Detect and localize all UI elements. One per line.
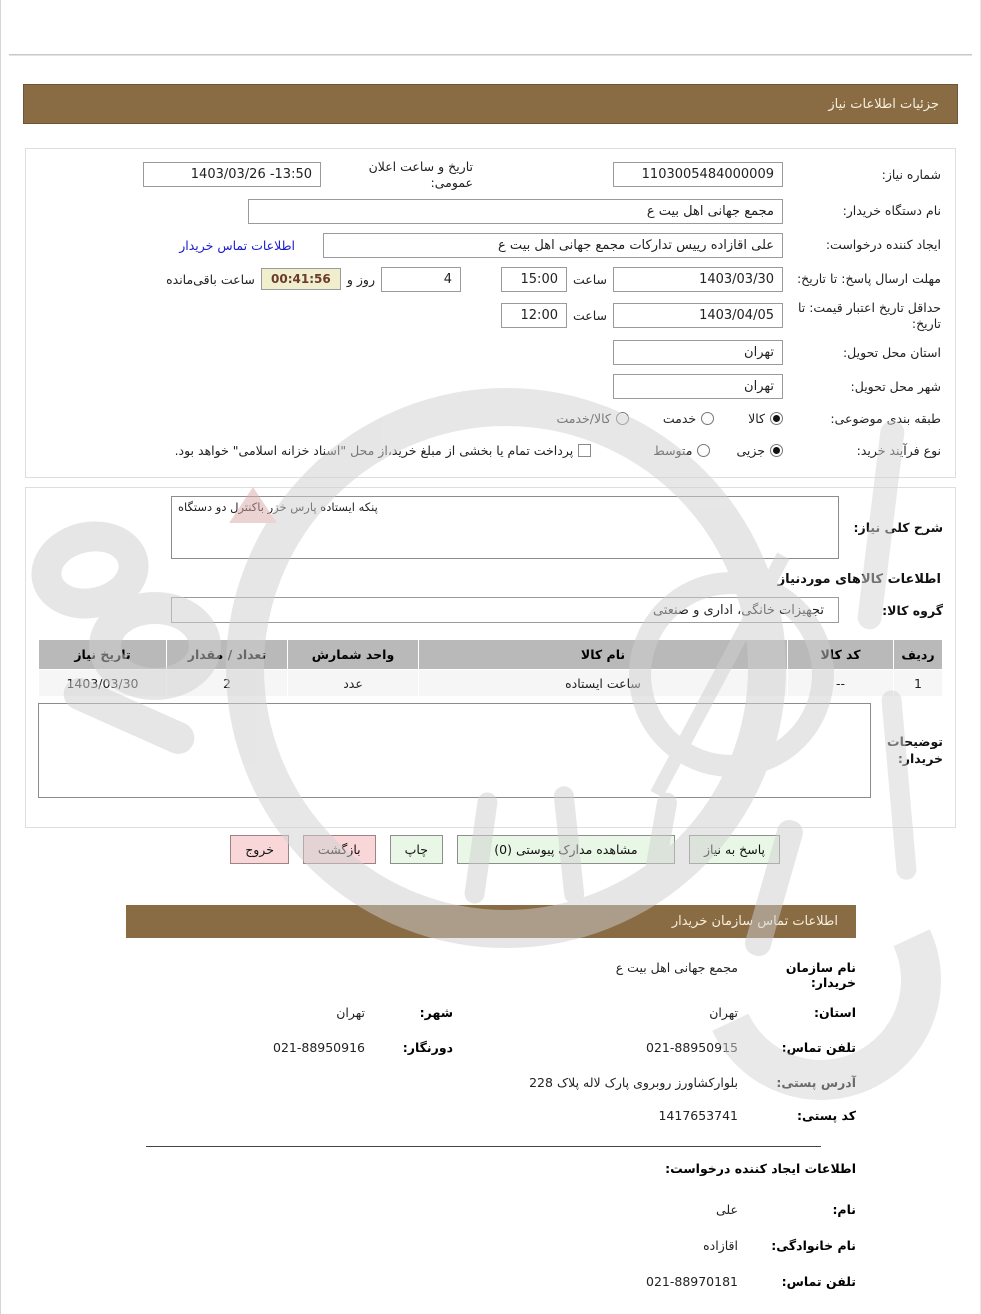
reply-deadline-time-field[interactable]: 15:00 xyxy=(501,267,567,292)
cell-code: -- xyxy=(788,670,893,696)
announce-datetime-label: تاریخ و ساعت اعلان عمومی: xyxy=(321,159,473,190)
row-need-number: شماره نیاز: 1103005484000009 تاریخ و ساع… xyxy=(40,159,941,190)
section-header-details-title: جزئیات اطلاعات نیاز xyxy=(828,97,939,112)
contact-province-label: استان: xyxy=(738,1005,856,1020)
option-service: خدمت xyxy=(663,411,714,426)
row-goods-group: گروه کالا: تجهیزات خانگی، اداری و صنعتی xyxy=(38,597,943,623)
option-minor: جزیی xyxy=(736,443,783,458)
radio-minor[interactable] xyxy=(770,444,783,457)
hours-remaining-label: ساعت باقی‌مانده xyxy=(166,272,255,287)
reply-deadline-hour-label: ساعت xyxy=(573,272,607,287)
org-name-value: مجمع جهانی اهل بیت ع xyxy=(606,960,738,975)
buyer-comments-label: توضیحات خریدار: xyxy=(871,734,943,768)
row-postal-code: کد پستی: 1417653741 xyxy=(126,1108,856,1128)
first-name-label: نام: xyxy=(738,1202,856,1217)
buyer-contact-link[interactable]: اطلاعات تماس خریدار xyxy=(179,238,295,253)
first-name-value: علی xyxy=(706,1202,738,1217)
delivery-city-label: شهر محل تحویل: xyxy=(783,379,941,395)
top-divider xyxy=(9,54,972,56)
contact-city-value: تهران xyxy=(135,1005,365,1020)
col-row: ردیف xyxy=(894,640,942,669)
col-name: نام کالا xyxy=(419,640,787,669)
creator-info-heading: اطلاعات ایجاد کننده درخواست: xyxy=(126,1161,856,1176)
row-province-city: استان: تهران شهر: تهران xyxy=(126,1005,856,1025)
delivery-province-label: استان محل تحویل: xyxy=(783,345,941,361)
back-button[interactable]: بازگشت xyxy=(303,835,376,864)
option-medium: متوسط xyxy=(653,443,710,458)
table-row[interactable]: 1 -- ساعت ایستاده عدد 2 1403/03/30 xyxy=(39,670,942,696)
price-validity-date-field[interactable]: 1403/04/05 xyxy=(613,303,783,328)
last-name-value: اقازاده xyxy=(693,1238,738,1253)
reply-deadline-date-field[interactable]: 1403/03/30 xyxy=(613,267,783,292)
cell-unit: عدد xyxy=(288,670,418,696)
price-validity-time-field[interactable]: 12:00 xyxy=(501,303,567,328)
creator-phone-label: تلفن تماس: xyxy=(738,1274,856,1289)
cell-name: ساعت ایستاده xyxy=(419,670,787,696)
treasury-payment-option: پرداخت تمام یا بخشی از مبلغ خرید،از محل … xyxy=(175,443,592,458)
row-delivery-city: شهر محل تحویل: تهران xyxy=(40,374,941,400)
row-delivery-province: استان محل تحویل: تهران xyxy=(40,340,941,366)
radio-goods-service[interactable] xyxy=(616,412,629,425)
col-qty: تعداد / مقدار xyxy=(167,640,287,669)
option-goods-service: کالا/خدمت xyxy=(556,411,628,426)
contact-phone-value: 021-88950915 xyxy=(453,1040,738,1055)
row-postal-address: آدرس پستی: بلوارکشاورز روبروی پارک لاله … xyxy=(126,1075,856,1095)
countdown-timer: 00:41:56 xyxy=(261,268,341,290)
action-buttons-row: پاسخ به نیاز مشاهده مدارک پیوستی (0) چاپ… xyxy=(1,835,980,864)
goods-section-heading: اطلاعات کالاهای موردنیاز xyxy=(38,572,941,587)
postal-address-value: بلوارکشاورز روبروی پارک لاله پلاک 228 xyxy=(519,1075,738,1090)
radio-medium[interactable] xyxy=(697,444,710,457)
announce-datetime-field[interactable]: 1403/03/26 -13:50 xyxy=(143,162,321,187)
print-button[interactable]: چاپ xyxy=(390,835,443,864)
need-description-label: شرح کلی نیاز: xyxy=(839,520,943,535)
row-phone-fax: تلفن تماس: 021-88950915 دورنگار: 021-889… xyxy=(126,1040,856,1060)
row-subject-class: طبقه بندی موضوعی: کالا خدمت کالا/خدمت xyxy=(40,408,941,430)
cell-date: 1403/03/30 xyxy=(39,670,166,696)
buyer-device-label: نام دستگاه خریدار: xyxy=(783,203,941,219)
radio-goods[interactable] xyxy=(770,412,783,425)
creator-phone-value: 021-88970181 xyxy=(636,1274,738,1289)
row-buyer-device: نام دستگاه خریدار: مجمع جهانی اهل بیت ع xyxy=(40,198,941,224)
row-price-validity: حداقل تاریخ اعتبار قیمت: تا تاریخ: 1403/… xyxy=(40,300,941,331)
remaining-days-field[interactable]: 4 xyxy=(381,267,461,292)
goods-group-label: گروه کالا: xyxy=(839,603,943,618)
row-buyer-comments: توضیحات خریدار: xyxy=(38,703,943,798)
goods-info-panel: شرح کلی نیاز: پنکه ایستاده پارس خزر باکن… xyxy=(25,487,956,828)
need-description-textarea[interactable]: پنکه ایستاده پارس خزر باکنترل دو دستگاه xyxy=(171,496,839,559)
subject-class-label: طبقه بندی موضوعی: xyxy=(783,411,941,427)
request-creator-label: ایجاد کننده درخواست: xyxy=(783,237,941,253)
row-creator-phone: تلفن تماس: 021-88970181 xyxy=(126,1274,856,1294)
col-unit: واحد شمارش xyxy=(288,640,418,669)
section-header-contact: اطلاعات تماس سازمان خریدار xyxy=(126,905,856,938)
delivery-province-field[interactable]: تهران xyxy=(613,340,783,365)
row-request-creator: ایجاد کننده درخواست: علی اقازاده رییس تد… xyxy=(40,232,941,258)
row-need-description: شرح کلی نیاز: پنکه ایستاده پارس خزر باکن… xyxy=(38,496,943,559)
request-creator-field[interactable]: علی اقازاده رییس تدارکات مجمع جهانی اهل … xyxy=(323,233,783,258)
buyer-device-field[interactable]: مجمع جهانی اهل بیت ع xyxy=(248,199,783,224)
col-code: کد کالا xyxy=(788,640,893,669)
section-header-details: جزئیات اطلاعات نیاز xyxy=(23,84,958,124)
postal-address-label: آدرس پستی: xyxy=(738,1075,856,1090)
contact-fax-value: 021-88950916 xyxy=(135,1040,365,1055)
goods-table-header-row: ردیف کد کالا نام کالا واحد شمارش تعداد /… xyxy=(39,640,942,669)
delivery-city-field[interactable]: تهران xyxy=(613,374,783,399)
contact-divider xyxy=(146,1146,821,1147)
contact-province-value: تهران xyxy=(453,1005,738,1020)
contact-city-label: شهر: xyxy=(365,1005,453,1020)
row-last-name: نام خانوادگی: اقازاده xyxy=(126,1238,856,1258)
reply-deadline-label: مهلت ارسال پاسخ: تا تاریخ: xyxy=(783,271,941,287)
goods-table: ردیف کد کالا نام کالا واحد شمارش تعداد /… xyxy=(38,639,943,697)
treasury-payment-checkbox[interactable] xyxy=(578,444,591,457)
row-process-type: نوع فرآیند خرید: جزیی متوسط پرداخت تمام … xyxy=(40,440,941,462)
radio-service[interactable] xyxy=(701,412,714,425)
reply-to-need-button[interactable]: پاسخ به نیاز xyxy=(689,835,780,864)
cell-row: 1 xyxy=(894,670,942,696)
need-number-field[interactable]: 1103005484000009 xyxy=(613,162,783,187)
last-name-label: نام خانوادگی: xyxy=(738,1238,856,1253)
section-header-contact-title: اطلاعات تماس سازمان خریدار xyxy=(672,914,838,929)
treasury-payment-label: پرداخت تمام یا بخشی از مبلغ خرید،از محل … xyxy=(175,443,574,458)
need-info-panel: شماره نیاز: 1103005484000009 تاریخ و ساع… xyxy=(25,148,956,478)
postal-code-value: 1417653741 xyxy=(648,1108,738,1123)
option-goods: کالا xyxy=(748,411,783,426)
row-first-name: نام: علی xyxy=(126,1202,856,1222)
price-validity-hour-label: ساعت xyxy=(573,308,607,323)
col-date: تاریخ نیاز xyxy=(39,640,166,669)
view-attachments-button[interactable]: مشاهده مدارک پیوستی (0) xyxy=(457,835,675,864)
buyer-contact-section: نام سازمان خریدار: مجمع جهانی اهل بیت ع … xyxy=(126,960,856,1307)
row-org-name: نام سازمان خریدار: مجمع جهانی اهل بیت ع xyxy=(126,960,856,990)
org-name-label: نام سازمان خریدار: xyxy=(738,960,856,990)
process-type-label: نوع فرآیند خرید: xyxy=(783,443,941,459)
days-and-label: روز و xyxy=(347,272,375,287)
price-validity-label: حداقل تاریخ اعتبار قیمت: تا تاریخ: xyxy=(783,300,941,331)
cell-qty: 2 xyxy=(167,670,287,696)
need-number-label: شماره نیاز: xyxy=(783,167,941,183)
row-reply-deadline: مهلت ارسال پاسخ: تا تاریخ: 1403/03/30 سا… xyxy=(40,266,941,292)
exit-button[interactable]: خروج xyxy=(230,835,289,864)
buyer-comments-textarea[interactable] xyxy=(38,703,871,798)
contact-fax-label: دورنگار: xyxy=(365,1040,453,1055)
contact-phone-label: تلفن تماس: xyxy=(738,1040,856,1055)
goods-group-field[interactable]: تجهیزات خانگی، اداری و صنعتی xyxy=(171,597,839,623)
postal-code-label: کد پستی: xyxy=(738,1108,856,1123)
procurement-detail-page: جزئیات اطلاعات نیاز شماره نیاز: 11030054… xyxy=(0,0,981,1314)
